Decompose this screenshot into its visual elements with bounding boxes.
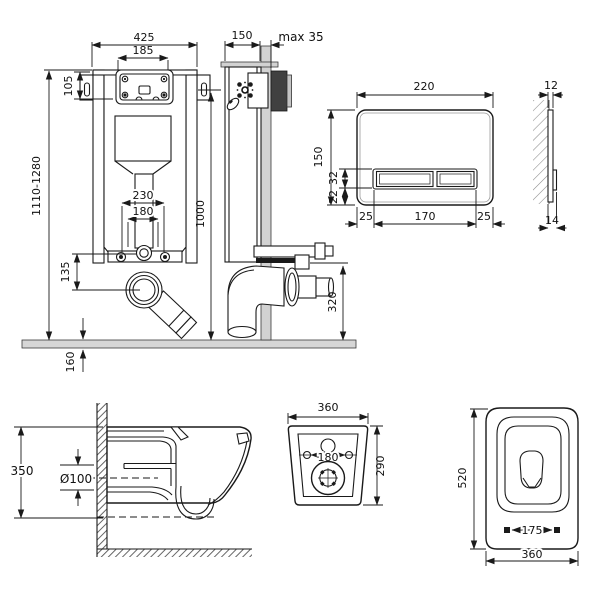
dim-label-25-left: 25: [359, 210, 373, 223]
dim-label-185: 185: [133, 44, 154, 57]
frame-rail-right: [186, 70, 197, 263]
dim-outlet-diameter: Ø100: [60, 449, 94, 506]
view-bowl-side: 350 Ø100: [11, 403, 252, 557]
dim-label-350: 350: [11, 464, 34, 478]
window-latch: [139, 86, 150, 94]
dim-outlet-height: 320: [310, 263, 348, 340]
wall-bracket-right: [197, 75, 210, 100]
drain-trap-side: [228, 266, 334, 338]
cistern-tank: [115, 116, 171, 161]
dim-label-1000: 1000: [194, 200, 207, 228]
dim-label-220: 220: [414, 80, 435, 93]
dim-wall-max: max 35: [271, 30, 324, 68]
flush-valve: [137, 246, 152, 261]
dim-rear-width: 360: [288, 401, 368, 424]
dim-label-230: 230: [133, 189, 154, 202]
dim-label-150-depth: 150: [232, 29, 253, 42]
dim-frame-height: 1110-1280: [30, 70, 92, 340]
dim-label-22: 22: [327, 190, 340, 204]
dim-top-depth: 520: [456, 409, 488, 549]
dim-label-520: 520: [456, 468, 469, 489]
dim-frame-depth: 150: [225, 29, 260, 61]
dim-label-14: 14: [545, 214, 559, 227]
view-bowl-top: 175 520 360: [456, 408, 578, 566]
plate-mount-face: [287, 75, 292, 107]
view-flush-plate-profile: 12 14: [533, 79, 567, 228]
plate-profile: [548, 110, 553, 202]
dim-label-25-right: 25: [477, 210, 491, 223]
wall-bracket-left: [80, 75, 93, 100]
dim-label-360-top: 360: [522, 548, 543, 561]
flush-plate: [357, 110, 493, 205]
outlet-mark: [312, 462, 345, 495]
dim-label-max35: max 35: [278, 30, 323, 44]
technical-drawing: 425 185 105 1110-1280 230 180: [0, 0, 600, 600]
dim-label-d100: Ø100: [60, 472, 92, 486]
dim-plate-width: 220: [357, 80, 493, 108]
dim-top-width: 360: [486, 548, 578, 566]
view-frame-front: 425 185 105 1110-1280 230 180: [30, 31, 210, 373]
dim-label-320: 320: [326, 292, 339, 313]
dim-label-180: 180: [133, 205, 154, 218]
outlet-flange: [285, 268, 299, 306]
dim-label-160: 160: [64, 352, 77, 373]
top-rail-bar: [221, 62, 278, 67]
wall-hatch: [533, 100, 549, 204]
dim-height-1000: 1000: [194, 90, 221, 340]
flush-button-large: [377, 172, 434, 187]
dim-label-32: 32: [327, 171, 340, 185]
dim-label-360-rear: 360: [318, 401, 339, 414]
seat-hole-right: [554, 527, 560, 533]
flush-unit-box: [248, 73, 268, 108]
inspection-window: [116, 70, 173, 104]
floor-bar: [22, 340, 356, 348]
dim-label-12: 12: [544, 79, 558, 92]
dim-label-105: 105: [62, 76, 75, 97]
dim-label-170: 170: [415, 210, 436, 223]
wall-hatch-side: [97, 403, 107, 557]
seat-hole-left: [504, 527, 510, 533]
dim-button-offset: 22: [327, 188, 345, 205]
floor-section: [22, 340, 356, 348]
plate-mount-block: [271, 71, 287, 111]
dim-label-150-plate: 150: [312, 147, 325, 168]
dim-window-width: 185: [118, 44, 168, 70]
floor-hatch: [107, 549, 252, 557]
flush-button-small: [437, 172, 474, 187]
view-frame-side: 150 max 35 1000 320: [194, 29, 348, 340]
dim-label-425: 425: [134, 31, 155, 44]
dim-label-175: 175: [522, 524, 543, 537]
view-bowl-rear: 180 360 290: [288, 401, 387, 505]
drawing-sheet: 425 185 105 1110-1280 230 180: [0, 0, 600, 600]
dim-label-135: 135: [59, 262, 72, 283]
view-flush-plate-front: 220 150 32 22 25 170 25: [312, 80, 505, 228]
dim-label-290: 290: [374, 456, 387, 477]
drain-elbow: [126, 272, 197, 339]
button-profile: [553, 170, 557, 190]
dim-label-height-range: 1110-1280: [30, 156, 43, 216]
